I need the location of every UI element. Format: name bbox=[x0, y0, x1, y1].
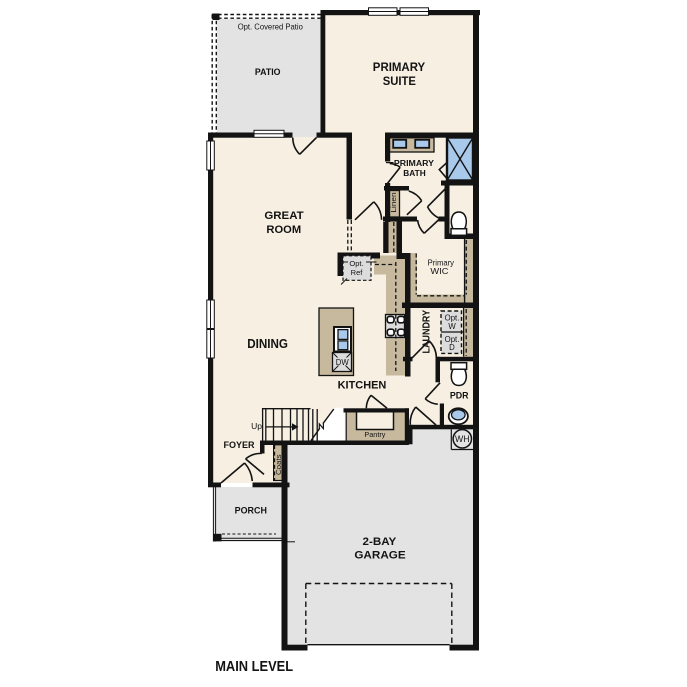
svg-text:Opt.: Opt. bbox=[349, 259, 363, 268]
svg-text:Pantry: Pantry bbox=[364, 430, 385, 439]
svg-text:DINING: DINING bbox=[247, 337, 288, 351]
svg-text:WIC: WIC bbox=[430, 267, 448, 276]
svg-text:Up: Up bbox=[251, 421, 262, 431]
svg-text:WH: WH bbox=[455, 434, 470, 444]
svg-text:FOYER: FOYER bbox=[224, 440, 255, 450]
svg-text:GREAT: GREAT bbox=[264, 210, 304, 222]
svg-text:DW: DW bbox=[336, 358, 349, 367]
svg-text:SUITE: SUITE bbox=[383, 74, 416, 88]
svg-text:GARAGE: GARAGE bbox=[354, 550, 406, 562]
svg-text:D: D bbox=[449, 343, 455, 352]
svg-text:LAUNDRY: LAUNDRY bbox=[422, 310, 433, 354]
svg-text:Ref: Ref bbox=[351, 268, 364, 277]
svg-text:Coats: Coats bbox=[276, 454, 283, 475]
svg-text:PATIO: PATIO bbox=[255, 67, 281, 77]
svg-text:PDR: PDR bbox=[450, 391, 469, 401]
svg-text:PORCH: PORCH bbox=[235, 506, 267, 516]
svg-text:Linen: Linen bbox=[391, 192, 398, 212]
svg-text:Opt. Covered Patio: Opt. Covered Patio bbox=[238, 23, 304, 32]
svg-text:MAIN LEVEL: MAIN LEVEL bbox=[215, 658, 293, 675]
svg-text:PRIMARY: PRIMARY bbox=[394, 159, 435, 168]
svg-text:W: W bbox=[448, 322, 456, 331]
svg-text:2-BAY: 2-BAY bbox=[363, 536, 397, 548]
svg-text:PRIMARY: PRIMARY bbox=[373, 60, 425, 74]
svg-text:Primary: Primary bbox=[428, 258, 454, 267]
svg-text:BATH: BATH bbox=[403, 169, 426, 178]
svg-text:KITCHEN: KITCHEN bbox=[338, 380, 387, 392]
svg-text:ROOM: ROOM bbox=[266, 224, 301, 236]
